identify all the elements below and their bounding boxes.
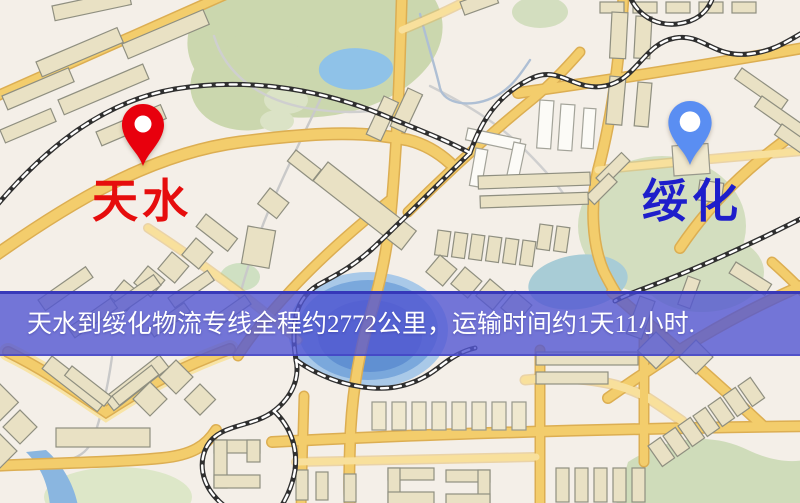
map-pin-icon [667,100,713,166]
origin-pin[interactable] [121,103,165,172]
route-info-banner: 天水到绥化物流专线全程约2772公里，运输时间约1天11小时. [0,291,800,356]
route-info-text: 天水到绥化物流专线全程约2772公里，运输时间约1天11小时. [27,304,695,340]
logistics-route-map: 天水 绥化 天水到绥化物流专线全程约2772公里，运输时间约1天11小时. [0,0,800,503]
map-pin-icon [121,103,165,167]
map-background [0,0,800,503]
pin-hole [680,111,701,132]
pin-body [122,104,164,166]
origin-city-label: 天水 [92,179,192,225]
destination-pin[interactable] [667,100,713,171]
pin-body [668,101,711,165]
destination-city-label: 绥化 [642,179,742,225]
pin-hole [135,116,152,133]
